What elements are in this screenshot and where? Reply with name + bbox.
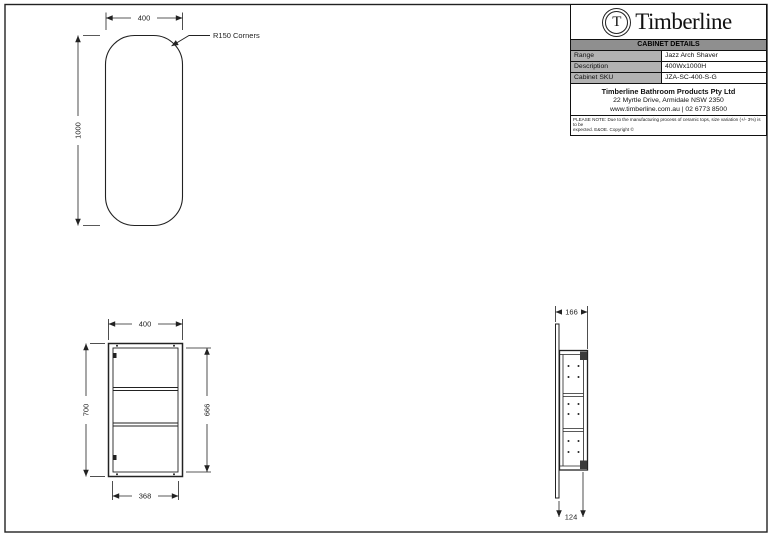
table-row-cabinet-sku: Cabinet SKU JZA-SC-400-S-G	[571, 73, 766, 84]
description-value: 400Wx1000H	[662, 62, 766, 72]
mirror-outline	[106, 36, 183, 226]
range-label: Range	[571, 51, 662, 61]
table-row-description: Description 400Wx1000H	[571, 62, 766, 73]
side-cabinet-depth-dimension	[559, 472, 583, 517]
company-name: Timberline Bathroom Products Pty Ltd	[571, 87, 766, 96]
disclaimer-line-2: expected. E&OE. Copyright ©	[573, 127, 764, 132]
cabinet-details-header: CABINET DETAILS	[571, 40, 766, 51]
table-row-range: Range Jazz Arch Shaver	[571, 51, 766, 62]
disclaimer-note: PLEASE NOTE: Due to the manufacturing pr…	[571, 115, 766, 135]
cabinet-shelves	[113, 388, 178, 427]
mirror-front-view: 400 1000 R150 Corners	[73, 13, 260, 226]
cabinet-inner-width-label: 368	[139, 492, 152, 501]
side-shelf-pin-holes	[568, 365, 580, 453]
company-logo: T Timberline	[571, 5, 766, 40]
cabinet-inner-height-label: 666	[203, 404, 212, 417]
cabinet-sku-label: Cabinet SKU	[571, 73, 662, 83]
brand-name: Timberline	[635, 9, 731, 35]
mirror-height-label: 1000	[74, 122, 83, 139]
corner-radius-leader	[172, 36, 211, 47]
company-address: 22 Myrtle Drive, Armidale NSW 2350	[571, 96, 766, 105]
company-info: Timberline Bathroom Products Pty Ltd 22 …	[571, 84, 766, 115]
side-overall-depth-label: 166	[565, 308, 578, 317]
side-shelves	[563, 394, 584, 432]
range-value: Jazz Arch Shaver	[662, 51, 766, 61]
side-carcass-inner	[560, 355, 588, 467]
cabinet-width-label: 400	[139, 320, 152, 329]
cabinet-fixing-marks	[113, 345, 175, 475]
cabinet-front-outline	[109, 344, 183, 477]
corner-radius-label: R150 Corners	[213, 31, 260, 40]
cabinet-sku-value: JZA-SC-400-S-G	[662, 73, 766, 83]
cabinet-height-label: 700	[82, 404, 91, 417]
mirror-width-label: 400	[138, 14, 151, 23]
side-door-panel	[556, 324, 560, 498]
title-block: T Timberline CABINET DETAILS Range Jazz …	[570, 4, 767, 136]
cabinet-front-view: 400 700 666 368	[81, 319, 213, 502]
side-cabinet-depth-label: 124	[565, 513, 578, 522]
cabinet-front-inner	[113, 348, 178, 472]
logo-t-icon: T	[605, 11, 628, 34]
company-contact: www.timberline.com.au | 02 6773 8500	[571, 105, 766, 114]
cabinet-side-view: 166 124	[556, 306, 588, 522]
description-label: Description	[571, 62, 662, 72]
disclaimer-line-1: PLEASE NOTE: Due to the manufacturing pr…	[573, 117, 764, 127]
